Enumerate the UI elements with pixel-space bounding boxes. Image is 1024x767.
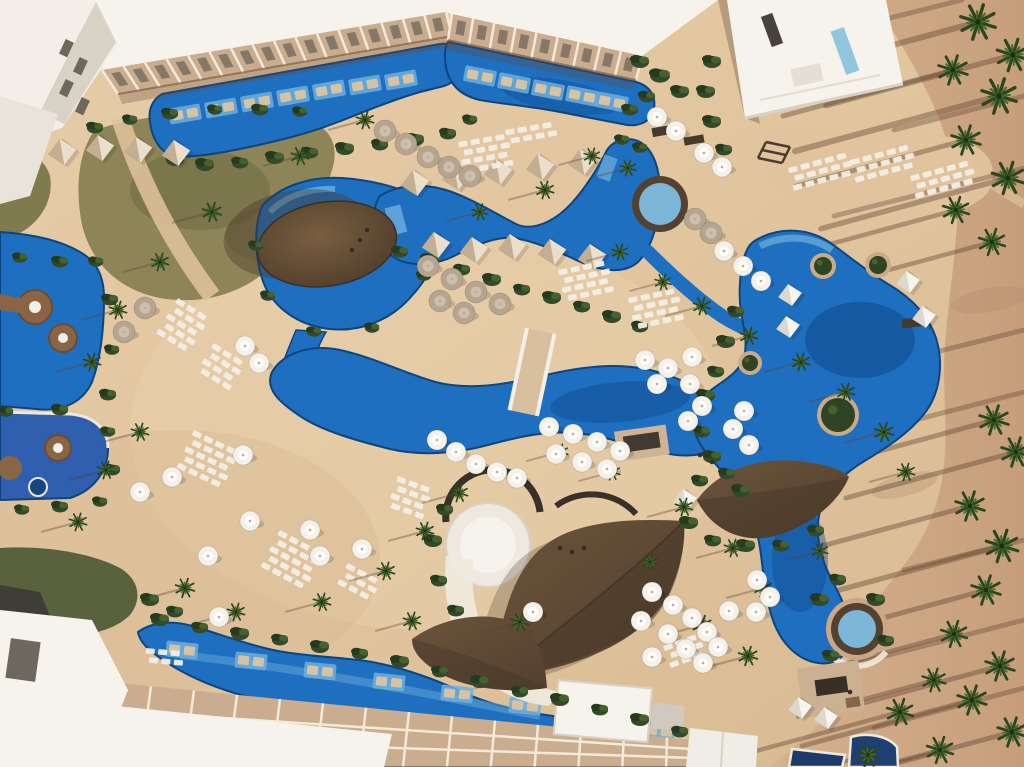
palm-crown [321, 601, 324, 604]
bush-blob [371, 324, 379, 330]
umbrella-pole [475, 291, 478, 294]
umbrella-pole [651, 656, 654, 659]
umbrella-pole [685, 648, 688, 651]
palm-crown [905, 471, 908, 474]
umbrella-pole [361, 548, 364, 551]
pool-platform [440, 684, 473, 703]
bush-blob [461, 265, 470, 271]
palm-crown [211, 211, 214, 214]
bush-blob [299, 108, 307, 114]
palm-crown [932, 678, 936, 682]
palm-crown [968, 504, 972, 508]
planter-foliage [869, 256, 887, 274]
platform-lounger [330, 83, 342, 94]
swimup-table-1 [29, 301, 41, 313]
bush-blob [639, 715, 649, 722]
facade-divider [666, 738, 667, 767]
palm-crown [591, 155, 593, 157]
umbrella-pole [691, 617, 694, 620]
bush-blob [819, 595, 829, 602]
umbrella-pole [710, 232, 713, 235]
palm-crown [954, 208, 958, 212]
palm-crown [1011, 53, 1016, 58]
bush-blob [19, 254, 27, 260]
bush-blob [599, 705, 608, 711]
lounger [161, 658, 170, 664]
umbrella-pole [258, 362, 261, 365]
palm-crown [883, 431, 886, 434]
umbrella-pole [572, 433, 575, 436]
palm-crown [458, 492, 461, 495]
palm-crown [662, 281, 664, 283]
bush-blob [107, 390, 116, 396]
platform-lounger [184, 646, 196, 656]
platform-lounger [366, 78, 378, 89]
bush-blob [432, 536, 442, 543]
bush-blob [111, 346, 119, 352]
bush-blob [5, 408, 13, 414]
palm-crown [970, 698, 974, 702]
bush-blob [639, 57, 649, 64]
palm-crown [91, 361, 94, 364]
palm-crown [627, 167, 629, 169]
resort-scene-svg [0, 0, 1024, 767]
bush-blob [95, 258, 103, 264]
umbrella-pole [516, 477, 519, 480]
umbrella-pole [249, 520, 252, 523]
palm-crown [1006, 176, 1011, 181]
umbrella-pole [619, 450, 622, 453]
umbrella-pole [242, 454, 245, 457]
umbrella-pole [644, 359, 647, 362]
umbrella-pole [436, 439, 439, 442]
umbrella-pole [694, 218, 697, 221]
platform-lounger [253, 657, 265, 667]
bush-blob [639, 144, 647, 150]
palm-crown [364, 119, 367, 122]
bush-blob [259, 105, 268, 111]
person-dot [698, 453, 703, 458]
planter-highlight [817, 260, 823, 266]
umbrella-pole [439, 300, 442, 303]
palm-crown [984, 588, 988, 592]
umbrella-pole [701, 405, 704, 408]
hot-tub-west [29, 478, 47, 496]
bush-blob [581, 302, 590, 308]
lounger [158, 649, 167, 655]
palm-crown [975, 19, 980, 24]
bush-blob [274, 153, 284, 160]
bush-blob [399, 657, 409, 664]
platform-lounger [387, 76, 399, 87]
bush-blob [830, 651, 839, 657]
platform-lounger [402, 73, 414, 84]
bush-blob [99, 498, 107, 504]
palm-crown [800, 361, 803, 364]
platform-lounger [294, 89, 306, 100]
planter-highlight [828, 405, 837, 414]
palm-crown [990, 240, 994, 244]
person-dot [558, 546, 563, 551]
umbrella-pole [723, 250, 726, 253]
umbrella-pole [651, 591, 654, 594]
palm-crown [411, 620, 414, 623]
palm-crown [998, 664, 1002, 668]
bush-blob [780, 541, 789, 547]
pool-platform [372, 672, 405, 691]
bush-blob [688, 518, 698, 525]
bush-blob [740, 486, 750, 493]
palm-crown [938, 748, 942, 752]
palm-crown [748, 335, 751, 338]
palm-crown [479, 211, 481, 213]
bush-blob [723, 145, 732, 151]
bush-blob [438, 576, 447, 582]
bush-blob [399, 247, 408, 253]
palm-crown [184, 587, 187, 590]
umbrella-pole [427, 265, 430, 268]
umbrella-pole [691, 356, 694, 359]
bush-blob [444, 505, 453, 511]
pool-platform [303, 661, 336, 680]
palm-crown [996, 93, 1001, 98]
umbrella-pole [675, 130, 678, 133]
bush-blob [711, 452, 721, 459]
person-dot [570, 550, 575, 555]
planter-foliage [742, 355, 758, 371]
umbrella-pole [656, 383, 659, 386]
bush-blob [109, 295, 118, 301]
lounger [149, 657, 158, 663]
palm-crown [105, 469, 108, 472]
umbrella-pole [207, 555, 210, 558]
palm-crown [992, 418, 996, 422]
umbrella-pole [499, 303, 502, 306]
person-dot [365, 228, 370, 233]
bush-blob [479, 677, 489, 684]
umbrella-pole [743, 410, 746, 413]
umbrella-pole [496, 471, 499, 474]
bush-blob [837, 575, 846, 581]
bush-blob [313, 328, 321, 334]
bush-blob [94, 123, 103, 129]
platform-lounger [376, 676, 388, 686]
person-dot [710, 460, 715, 465]
umbrella-pole [769, 596, 772, 599]
umbrella-pole [706, 631, 709, 634]
umbrella-pole [667, 367, 670, 370]
sw-building-window [5, 638, 40, 682]
palm-crown [951, 68, 955, 72]
platform-lounger [238, 655, 250, 665]
palm-crown [544, 189, 547, 192]
umbrella-pole [689, 383, 692, 386]
palm-crown [747, 655, 750, 658]
bush-blob [735, 307, 744, 313]
bush-blob [726, 469, 735, 475]
umbrella-pole [548, 426, 551, 429]
bush-blob [204, 160, 214, 167]
bush-blob [255, 242, 263, 248]
umbrella-pole [728, 610, 731, 613]
palm-crown [1010, 730, 1014, 734]
person-dot [358, 238, 363, 243]
bush-blob [712, 536, 721, 542]
platform-lounger [322, 667, 334, 677]
platform-lounger [279, 92, 291, 103]
bush-blob [344, 144, 354, 151]
bush-blob [359, 649, 368, 655]
palm-crown [424, 530, 427, 533]
palm-crown [1014, 450, 1018, 454]
umbrella-pole [319, 555, 322, 558]
umbrella-pole [139, 491, 142, 494]
platform-lounger [186, 107, 198, 118]
bush-blob [715, 367, 724, 373]
platform-lounger [512, 700, 524, 710]
umbrella-pole [427, 156, 430, 159]
bush-blob [705, 87, 715, 94]
bush-blob [629, 105, 638, 111]
umbrella-pole [123, 331, 126, 334]
lounger [174, 659, 183, 665]
umbrella-pole [640, 620, 643, 623]
bush-blob [621, 136, 629, 142]
umbrella-pole [171, 476, 174, 479]
bush-blob [107, 428, 115, 434]
platform-lounger [315, 86, 327, 97]
umbrella-pole [596, 441, 599, 444]
swimup-table-3 [53, 443, 63, 453]
palm-crown [299, 155, 302, 158]
bush-blob [711, 117, 721, 124]
bush-blob [239, 629, 249, 636]
pool-platform [234, 651, 267, 670]
umbrella-pole [475, 463, 478, 466]
palm-crown [701, 305, 704, 308]
bush-blob [491, 275, 501, 282]
umbrella-pole [732, 428, 735, 431]
umbrella-pole [384, 130, 387, 133]
bush-blob [169, 109, 178, 115]
bush-blob [21, 506, 29, 512]
bush-blob [551, 293, 561, 300]
planter-foliage [821, 398, 855, 432]
palm-crown [235, 611, 238, 614]
umbrella-pole [687, 420, 690, 423]
lounger [170, 650, 179, 656]
platform-lounger [391, 678, 403, 688]
umbrella-pole [448, 166, 451, 169]
palm-crown [385, 570, 388, 573]
umbrella-pole [144, 307, 147, 310]
bush-blob [214, 106, 222, 112]
bush-blob [199, 623, 208, 629]
bush-blob [59, 502, 68, 508]
bush-blob [699, 476, 708, 482]
bush-blob [239, 158, 248, 164]
umbrella-pole [309, 529, 312, 532]
platform-lounger [222, 101, 234, 112]
platform-lounger [459, 690, 471, 700]
palm-crown [619, 251, 621, 253]
bush-blob [875, 595, 885, 602]
platform-lounger [307, 665, 319, 675]
bush-blob [705, 391, 715, 398]
platform-lounger [444, 688, 456, 698]
umbrella-pole [756, 579, 759, 582]
palm-crown [1000, 544, 1005, 549]
lounger [146, 648, 155, 654]
person-dot [582, 546, 587, 551]
bush-blob [455, 606, 464, 612]
bush-blob [559, 695, 569, 702]
umbrella-pole [405, 143, 408, 146]
umbrella-pole [555, 453, 558, 456]
bush-blob [469, 116, 477, 122]
umbrella-pole [469, 175, 472, 178]
umbrella-pole [667, 633, 670, 636]
palm-crown [519, 621, 522, 624]
palm-crown [732, 547, 735, 550]
palm-crown [139, 431, 142, 434]
palm-crown [117, 309, 120, 312]
person-dot [836, 686, 841, 691]
bush-blob [611, 312, 621, 319]
bush-blob [267, 292, 275, 298]
umbrella-pole [703, 152, 706, 155]
umbrella-pole [463, 312, 466, 315]
umbrella-pole [760, 280, 763, 283]
bush-blob [59, 405, 68, 411]
umbrella-pole [748, 444, 751, 447]
umbrella-pole [742, 265, 745, 268]
umbrella-pole [455, 451, 458, 454]
bush-blob [646, 92, 655, 98]
palm-crown [159, 261, 162, 264]
bush-blob [159, 615, 169, 622]
palm-crown [845, 391, 848, 394]
person-dot [848, 690, 853, 695]
firepit-bench [845, 696, 860, 708]
umbrella-pole [606, 468, 609, 471]
umbrella-pole [702, 662, 705, 665]
palm-crown [964, 138, 968, 142]
bush-blob [885, 636, 894, 642]
palm-crown [683, 506, 686, 509]
bush-blob [447, 129, 456, 135]
bush-blob [679, 727, 688, 733]
palm-crown [649, 561, 651, 563]
bush-blob [59, 257, 68, 263]
bush-blob [701, 427, 710, 433]
umbrella-pole [244, 345, 247, 348]
platform-lounger [258, 95, 270, 106]
aerial-resort-photo [0, 0, 1024, 767]
umbrella-pole [656, 116, 659, 119]
palm-crown [898, 710, 902, 714]
platform-lounger [351, 81, 363, 92]
person-dot [350, 248, 355, 253]
umbrella-pole [717, 646, 720, 649]
palm-crown [819, 550, 821, 552]
umbrella-pole [218, 616, 221, 619]
palm-crown [952, 632, 956, 636]
bush-blob [309, 148, 318, 154]
bush-blob [129, 116, 137, 122]
bush-blob [174, 607, 183, 613]
umbrella-pole [532, 611, 535, 614]
bush-blob [279, 635, 288, 641]
bush-blob [745, 541, 755, 548]
planter-foliage [814, 257, 832, 275]
bush-blob [815, 526, 824, 532]
bush-blob [711, 57, 721, 64]
bush-blob [659, 70, 670, 78]
bush-blob [519, 687, 528, 693]
pool-deep-patch-1 [805, 302, 915, 378]
planter-highlight [872, 259, 878, 265]
umbrella-pole [755, 611, 758, 614]
palm-crown [77, 521, 80, 524]
bush-blob [521, 285, 530, 291]
umbrella-pole [672, 604, 675, 607]
bush-blob [439, 667, 448, 673]
bush-blob [679, 87, 689, 94]
bush-blob [319, 642, 329, 649]
umbrella-pole [581, 461, 584, 464]
umbrella-pole [721, 166, 724, 169]
pool-platform [165, 640, 198, 659]
spa-pool-water [639, 183, 681, 225]
planter-highlight [744, 357, 749, 362]
umbrella-pole [451, 278, 454, 281]
swimup-table-2 [58, 333, 68, 343]
palm-crown [866, 753, 870, 757]
spa-south-water [838, 610, 876, 648]
